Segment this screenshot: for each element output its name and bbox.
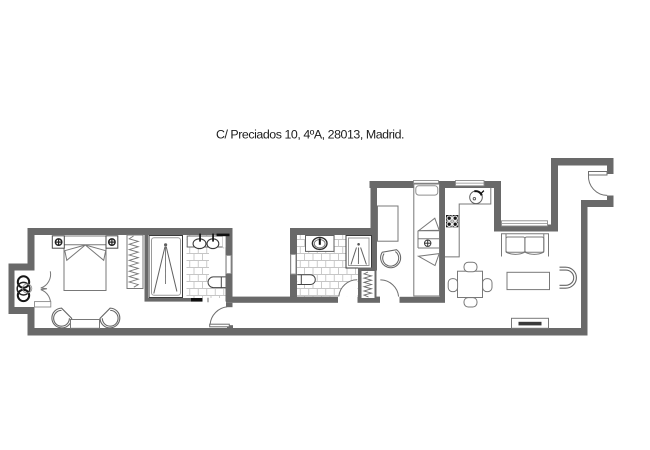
svg-text:C/ Preciados 10, 4ºA, 28013, M: C/ Preciados 10, 4ºA, 28013, Madrid. bbox=[216, 128, 404, 142]
